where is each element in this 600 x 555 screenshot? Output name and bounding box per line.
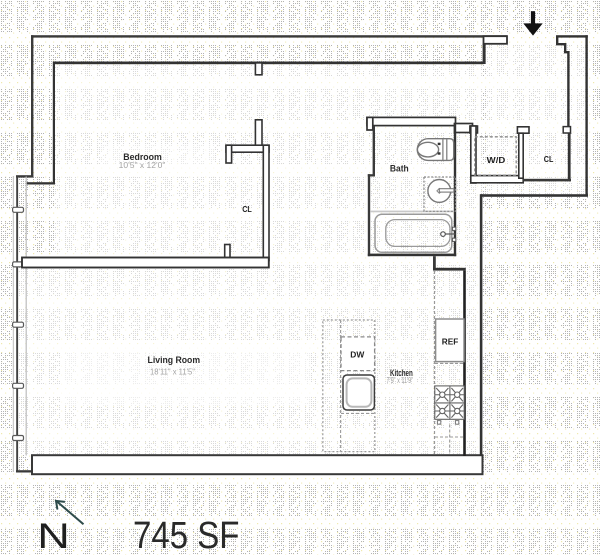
svg-text:W/D: W/D — [487, 156, 506, 165]
svg-text:CL: CL — [544, 155, 554, 164]
svg-text:Living Room: Living Room — [148, 354, 201, 365]
svg-text:Bath: Bath — [390, 162, 409, 173]
svg-text:7'9" x 11'9": 7'9" x 11'9" — [387, 376, 414, 385]
svg-text:10'5" x 12'0": 10'5" x 12'0" — [119, 161, 166, 170]
svg-text:CL: CL — [242, 205, 252, 214]
svg-text:REF: REF — [442, 338, 459, 347]
svg-text:DW: DW — [350, 351, 364, 360]
svg-text:18'11" x 11'5": 18'11" x 11'5" — [150, 367, 195, 376]
svg-text:N: N — [37, 516, 70, 555]
svg-text:745 SF: 745 SF — [133, 515, 240, 555]
